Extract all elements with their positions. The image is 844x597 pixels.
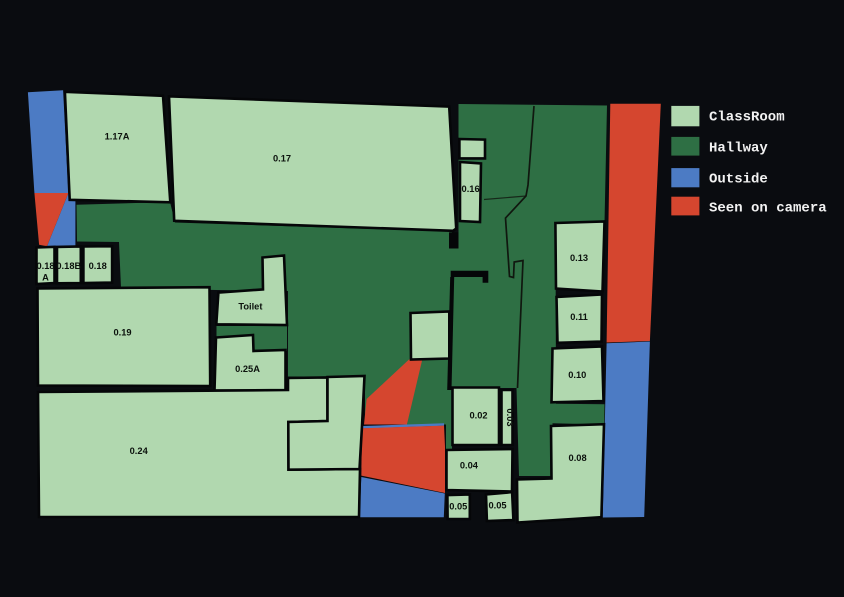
svg-text:A: A (42, 273, 49, 283)
svg-text:ClassRoom: ClassRoom (709, 110, 785, 126)
svg-text:0.17: 0.17 (273, 154, 291, 164)
svg-text:0.18: 0.18 (89, 261, 107, 271)
svg-text:0.19: 0.19 (113, 328, 131, 338)
svg-text:0.08: 0.08 (569, 453, 587, 463)
svg-text:Outside: Outside (709, 172, 768, 188)
svg-text:0.18B: 0.18B (56, 261, 81, 271)
svg-text:Seen on camera: Seen on camera (709, 201, 827, 217)
svg-text:Toilet: Toilet (238, 302, 262, 312)
svg-text:0.10: 0.10 (568, 370, 586, 380)
svg-text:0.11: 0.11 (570, 312, 588, 322)
svg-text:0.03: 0.03 (505, 408, 515, 426)
svg-text:0.18: 0.18 (36, 261, 54, 271)
svg-text:Hallway: Hallway (709, 141, 768, 157)
svg-text:0.05: 0.05 (449, 501, 467, 511)
svg-text:0.02: 0.02 (469, 411, 487, 421)
svg-text:0.16: 0.16 (462, 184, 480, 194)
svg-text:0.25A: 0.25A (235, 364, 260, 374)
svg-text:0.04: 0.04 (460, 461, 479, 471)
svg-text:0.05: 0.05 (488, 501, 506, 511)
svg-text:0.24: 0.24 (130, 446, 149, 456)
svg-text:1.17A: 1.17A (105, 132, 130, 142)
svg-text:0.13: 0.13 (570, 253, 588, 263)
